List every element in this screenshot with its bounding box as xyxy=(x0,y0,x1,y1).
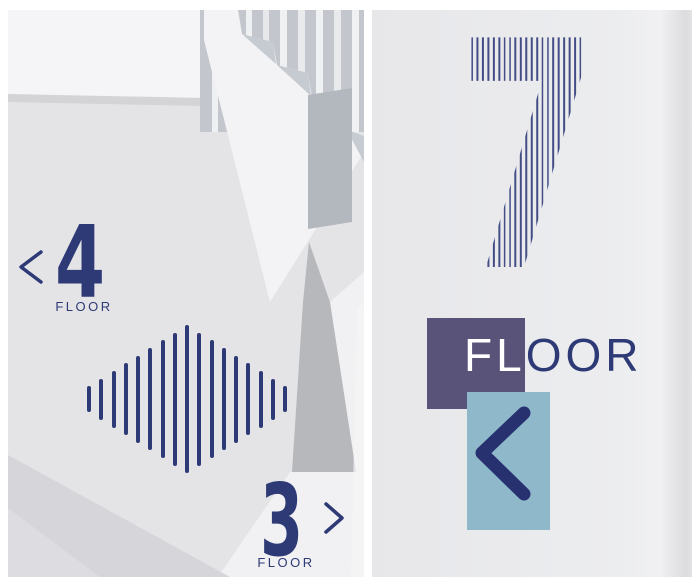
diamond-bar xyxy=(124,363,128,435)
diamond-bar xyxy=(234,356,238,443)
diamond-bar xyxy=(87,386,91,412)
floor-3-label: FLOOR xyxy=(250,555,322,570)
floor-label-on-square: FL xyxy=(464,329,526,381)
diamond-bar xyxy=(271,379,275,420)
diamond-bar xyxy=(210,340,214,458)
left-photo-stairwell: 4 FLOOR 3 FLOOR xyxy=(8,10,364,577)
blue-square xyxy=(467,392,550,530)
diamond-bar xyxy=(283,386,287,412)
striped-numeral: 7 xyxy=(455,10,600,317)
diamond-bar xyxy=(99,379,103,420)
diamond-bar xyxy=(112,371,116,428)
chevron-left-icon xyxy=(18,250,44,284)
diamond-bar xyxy=(259,371,263,428)
diamond-stripe-pattern xyxy=(87,325,287,473)
upper-wall xyxy=(8,10,210,98)
floor-4-number: 4 xyxy=(55,213,105,313)
diamond-bar xyxy=(136,356,140,443)
diamond-bar xyxy=(161,340,165,458)
chevron-right-icon xyxy=(323,502,345,534)
diamond-bar xyxy=(148,348,152,450)
diamond-bar xyxy=(222,348,226,450)
floor-7-label: FLOOR xyxy=(464,332,642,378)
floor-4-label: FLOOR xyxy=(52,299,116,314)
diamond-bar xyxy=(173,333,177,466)
right-photo-floor7: 7 FLOOR xyxy=(372,10,692,577)
gray-panel xyxy=(308,88,352,229)
diamond-bar xyxy=(246,363,250,435)
chevron-left-icon xyxy=(467,392,550,530)
floor-label-off-square: OOR xyxy=(526,329,643,381)
diamond-bar xyxy=(197,333,201,466)
diamond-bar xyxy=(185,325,189,473)
photo-collage: 4 FLOOR 3 FLOOR 7 FLOOR xyxy=(0,0,692,587)
floor-7-number: 7 xyxy=(455,39,587,269)
